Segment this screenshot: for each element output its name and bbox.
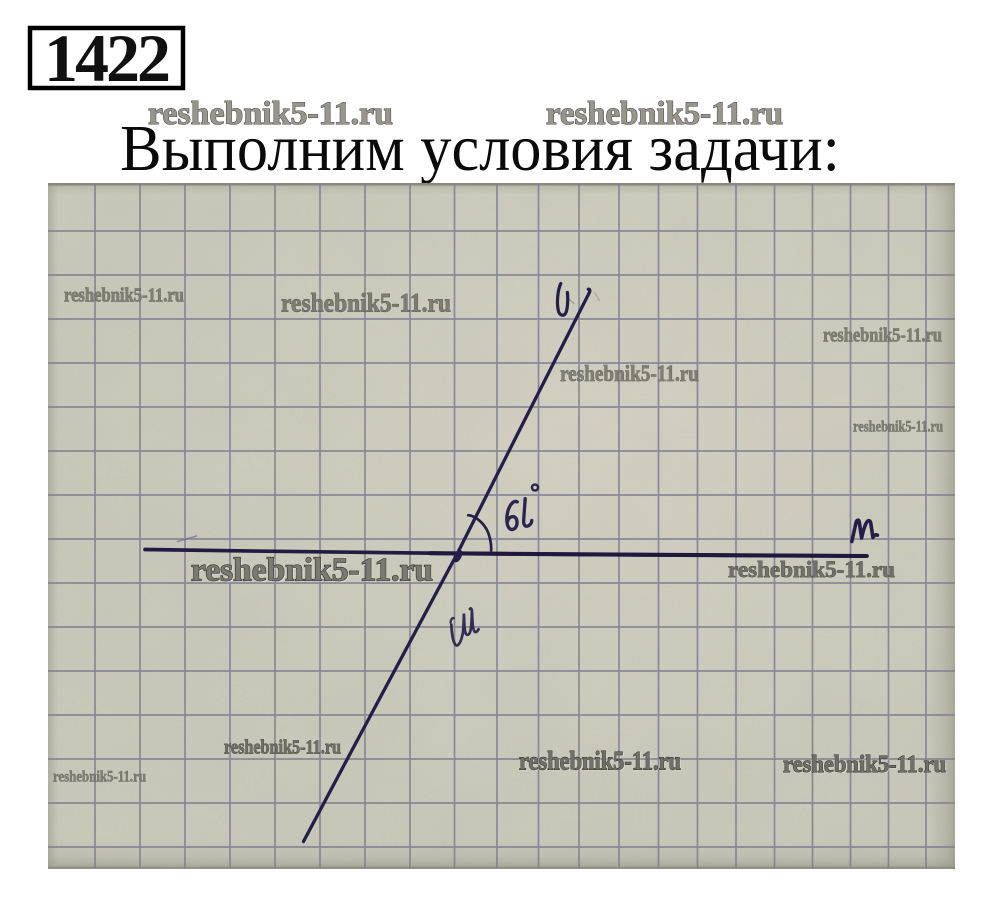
- svg-text:reshebnik5-11.ru: reshebnik5-11.ru: [728, 557, 895, 582]
- svg-text:reshebnik5-11.ru: reshebnik5-11.ru: [783, 752, 946, 778]
- svg-text:reshebnik5-11.ru: reshebnik5-11.ru: [64, 285, 184, 307]
- svg-text:reshebnik5-11.ru: reshebnik5-11.ru: [519, 747, 681, 776]
- svg-text:reshebnik5-11.ru: reshebnik5-11.ru: [281, 289, 451, 318]
- svg-text:reshebnik5-11.ru: reshebnik5-11.ru: [853, 419, 943, 436]
- svg-text:1422: 1422: [44, 20, 169, 96]
- svg-text:Выполним условия задачи:: Выполним условия задачи:: [120, 112, 840, 185]
- svg-text:reshebnik5-11.ru: reshebnik5-11.ru: [560, 361, 699, 386]
- svg-text:reshebnik5-11.ru: reshebnik5-11.ru: [224, 737, 341, 759]
- svg-text:reshebnik5-11.ru: reshebnik5-11.ru: [191, 553, 433, 589]
- svg-text:reshebnik5-11.ru: reshebnik5-11.ru: [53, 769, 146, 786]
- svg-text:reshebnik5-11.ru: reshebnik5-11.ru: [823, 325, 942, 347]
